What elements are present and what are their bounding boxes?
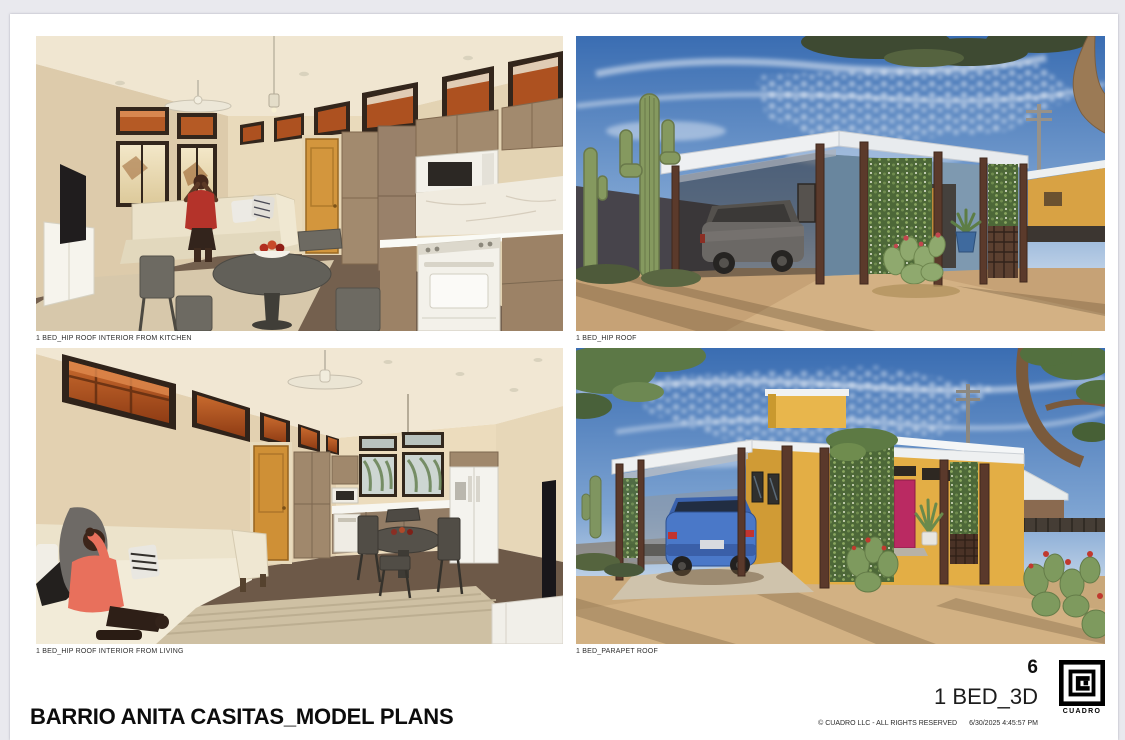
exterior-parapet-roof-illustration bbox=[576, 348, 1105, 644]
exterior-hip-roof-illustration bbox=[576, 36, 1105, 331]
panel-exterior-parapet-roof: 1 BED_PARAPET ROOF bbox=[576, 348, 1105, 655]
sheet-page: 1 BED_HIP ROOF INTERIOR FROM KITCHEN bbox=[10, 14, 1118, 740]
render-caption: 1 BED_HIP ROOF INTERIOR FROM KITCHEN bbox=[36, 335, 563, 342]
sheet-number: 6 bbox=[10, 658, 1038, 677]
logo-wordmark: CUADRO bbox=[1058, 708, 1106, 715]
panel-interior-from-kitchen: 1 BED_HIP ROOF INTERIOR FROM KITCHEN bbox=[36, 36, 563, 342]
cuadro-logo: CUADRO bbox=[1058, 660, 1106, 715]
project-title: BARRIO ANITA CASITAS_MODEL PLANS bbox=[30, 704, 453, 730]
render-caption: 1 BED_HIP ROOF INTERIOR FROM LIVING bbox=[36, 648, 563, 655]
document-viewport: { "project_title": "BARRIO ANITA CASITAS… bbox=[0, 0, 1125, 740]
timestamp-text: 6/30/2025 4:45:57 PM bbox=[969, 720, 1038, 727]
render-caption: 1 BED_HIP ROOF bbox=[576, 335, 1105, 342]
copyright-text: © CUADRO LLC - ALL RIGHTS RESERVED bbox=[818, 720, 957, 727]
cuadro-logo-icon bbox=[1059, 660, 1105, 706]
panel-exterior-hip-roof: 1 BED_HIP ROOF bbox=[576, 36, 1105, 342]
panel-interior-from-living: 1 BED_HIP ROOF INTERIOR FROM LIVING bbox=[36, 348, 563, 655]
interior-from-kitchen-illustration bbox=[36, 36, 563, 331]
interior-from-living-illustration bbox=[36, 348, 563, 644]
render-caption: 1 BED_PARAPET ROOF bbox=[576, 648, 1105, 655]
